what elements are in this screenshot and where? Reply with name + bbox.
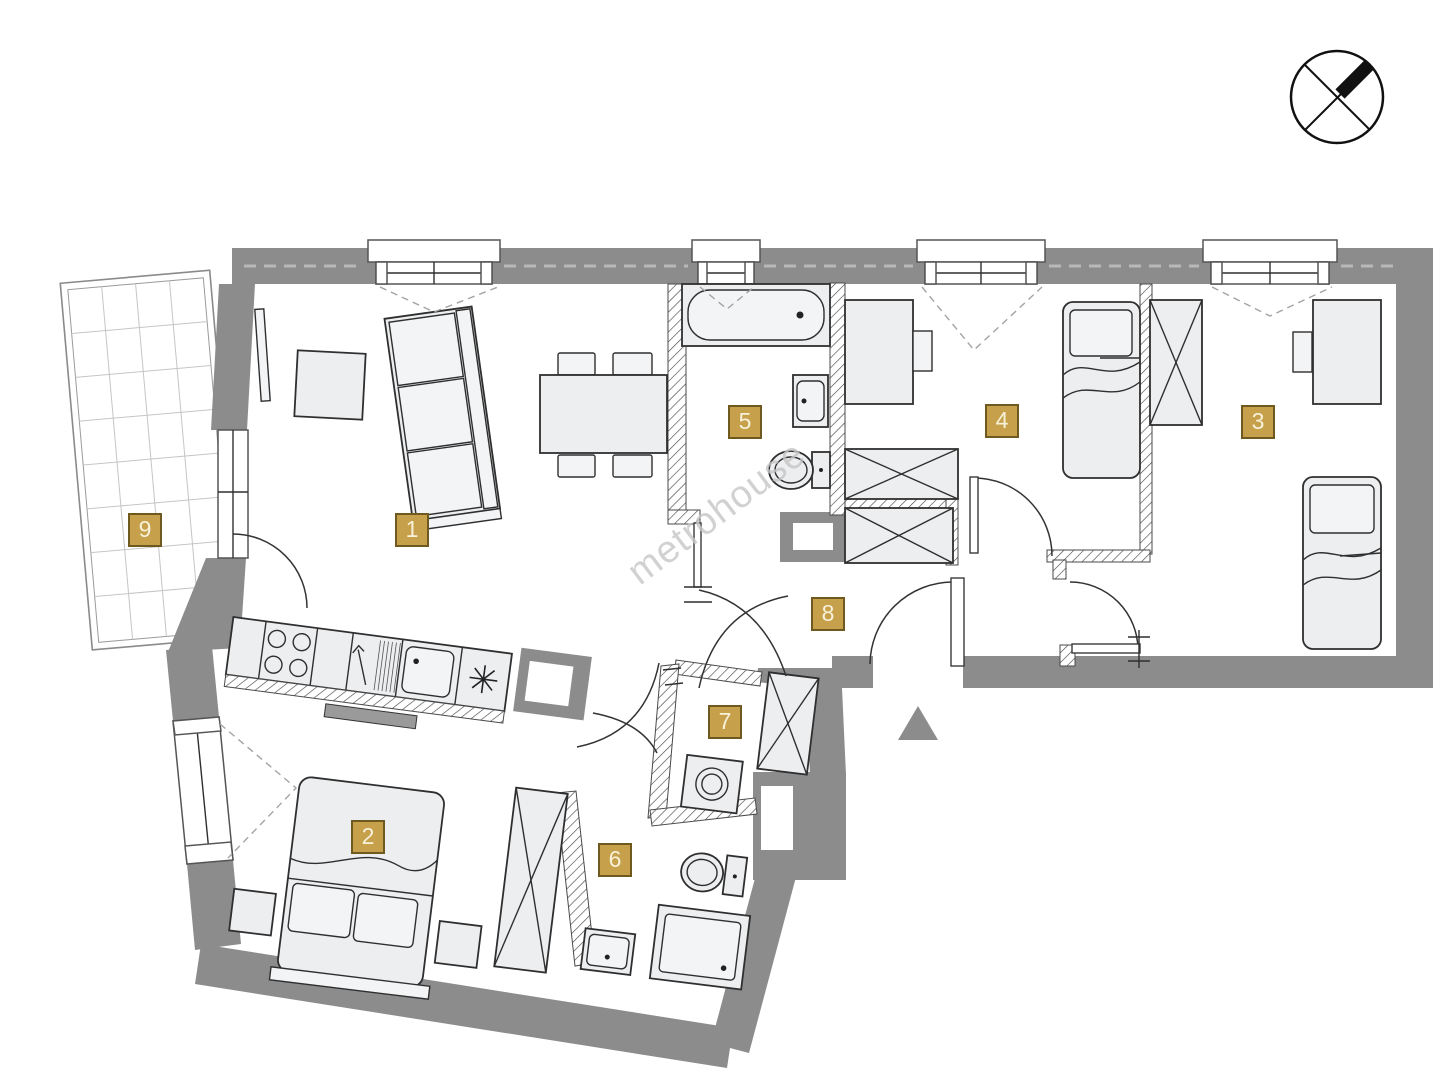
room-badge-7: 7 <box>708 705 742 739</box>
wardrobe <box>845 449 958 499</box>
bed <box>1303 477 1381 649</box>
sink <box>581 928 636 975</box>
room-badge-1: 1 <box>395 513 429 547</box>
floor-plan-drawing <box>0 0 1443 1080</box>
window <box>1203 240 1337 284</box>
entrance-door-leaf <box>951 578 964 666</box>
window <box>692 240 760 284</box>
duct-shaft <box>780 512 847 562</box>
room-badge-9: 9 <box>128 513 162 547</box>
wardrobe <box>494 788 568 973</box>
room-badge-8: 8 <box>811 597 845 631</box>
compass-icon <box>1291 51 1383 143</box>
room-badge-6: 6 <box>598 843 632 877</box>
kitchen-shaft <box>513 648 592 721</box>
desk <box>845 300 932 404</box>
room-badge-4: 4 <box>985 404 1019 438</box>
kitchen-sink <box>401 646 455 698</box>
kitchen-counter <box>222 617 512 740</box>
armchair <box>294 350 365 419</box>
sofa <box>384 307 501 531</box>
washing-machine <box>681 755 743 813</box>
floor-plan: metrohouse 123456789 <box>0 0 1443 1080</box>
window <box>368 240 500 284</box>
door-leaf <box>970 477 978 553</box>
wardrobe <box>757 672 818 774</box>
bathtub <box>682 284 830 346</box>
room-badge-5: 5 <box>728 405 762 439</box>
desk <box>1293 300 1381 404</box>
dining-table <box>540 353 667 477</box>
shower-tray <box>650 905 750 990</box>
wardrobe <box>1150 300 1202 425</box>
toilet <box>679 850 747 897</box>
tv-board <box>255 309 270 401</box>
window <box>917 240 1045 284</box>
wardrobe <box>845 508 953 563</box>
entrance-arrow <box>898 706 938 740</box>
balcony-door <box>218 430 248 558</box>
room-badge-2: 2 <box>351 820 385 854</box>
window <box>173 717 233 864</box>
bed <box>1063 302 1140 478</box>
room-badge-3: 3 <box>1241 405 1275 439</box>
